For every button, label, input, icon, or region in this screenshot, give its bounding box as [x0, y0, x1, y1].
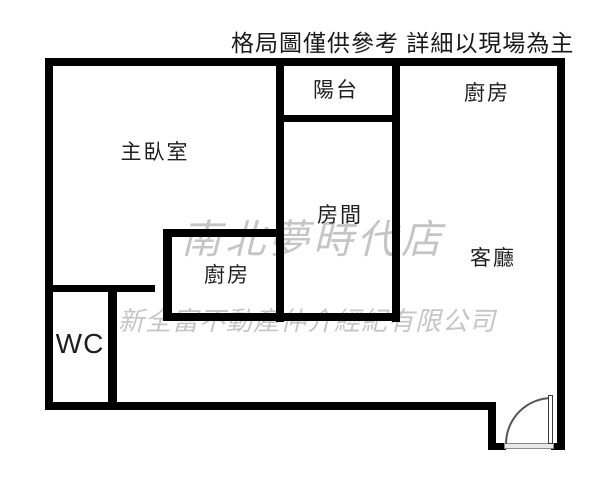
room-label-kitchen-middle: 廚房 — [204, 259, 250, 289]
room-label-balcony: 陽台 — [313, 74, 359, 104]
room-label-master-bedroom: 主臥室 — [121, 136, 190, 166]
wall-wc-right — [108, 285, 117, 410]
wall-middle-bottom — [163, 313, 400, 321]
entry-door-leaf — [548, 395, 553, 444]
wall-exterior-left — [45, 58, 53, 410]
room-label-bedroom-2: 房間 — [317, 199, 363, 229]
room-label-kitchen-top-right: 廚房 — [464, 77, 510, 107]
room-label-living-room: 客廳 — [470, 242, 516, 272]
wall-exterior-top — [45, 58, 565, 66]
wall-bedroom-divider — [276, 58, 284, 322]
wall-exterior-right — [557, 58, 565, 450]
wall-bedroom-step — [163, 229, 284, 237]
entry-door-swing-arc — [505, 397, 552, 444]
wall-balcony-bottom — [276, 115, 400, 122]
wall-kitchen-left — [163, 229, 172, 320]
disclaimer-title: 格局圖僅供參考 詳細以現場為主 — [231, 24, 574, 58]
wall-wc-top — [45, 285, 155, 292]
floor-plan: 格局圖僅供參考 詳細以現場為主 南北夢時代店 新全富不動產仲介經紀有限公司 主臥… — [0, 0, 610, 480]
wall-middle-right-divider — [392, 58, 400, 322]
room-label-toilet: WC — [56, 328, 105, 360]
